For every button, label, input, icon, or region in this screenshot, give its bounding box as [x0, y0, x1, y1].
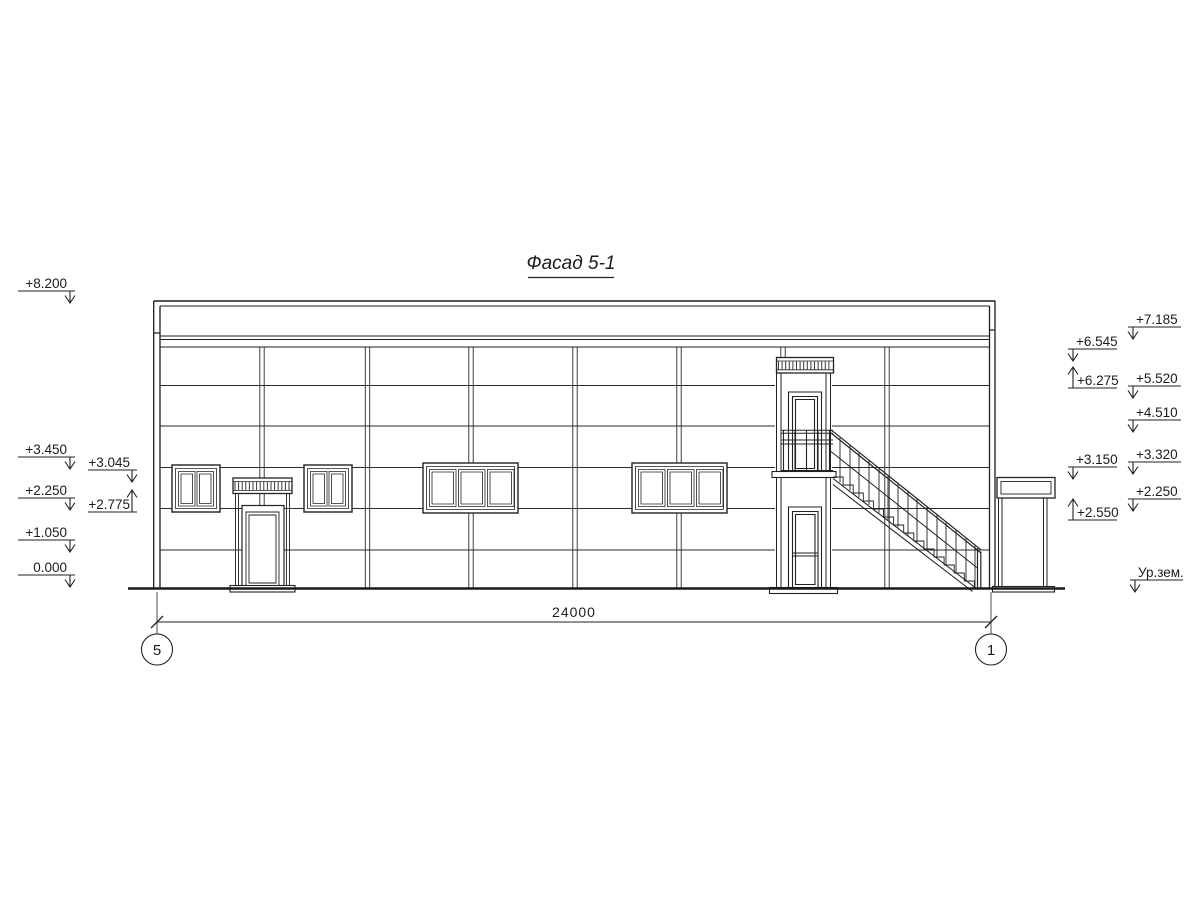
level-value: +2.250: [1136, 484, 1178, 499]
level-value: +6.545: [1076, 334, 1118, 349]
level-mark-symbol: [18, 498, 75, 510]
level-marker: +3.150: [1068, 452, 1118, 479]
level-mark-symbol: [1130, 580, 1183, 592]
level-mark-symbol: [18, 457, 75, 469]
level-mark-symbol: [18, 291, 75, 303]
level-mark-symbol: [1068, 467, 1117, 479]
exterior-stair: [831, 430, 981, 592]
level-value: +2.550: [1077, 505, 1119, 520]
level-value: 0.000: [33, 560, 67, 575]
level-marker: 0.000: [18, 560, 75, 587]
level-value: +8.200: [25, 276, 67, 291]
side-canopy: [993, 478, 1056, 593]
grid-axis-5: 5: [142, 634, 173, 665]
level-marker: +6.545: [1068, 334, 1118, 361]
axis-label-right: 1: [987, 642, 995, 659]
entrance-door-frame: [242, 506, 284, 589]
level-marker: +3.450: [18, 442, 75, 469]
stair-tower: [770, 358, 838, 594]
level-value: +3.045: [88, 455, 130, 470]
level-marker: +3.045: [88, 455, 137, 482]
level-value: +3.150: [1076, 452, 1118, 467]
level-marker: +5.520: [1128, 371, 1181, 398]
level-markers-left-outer: +8.200 +3.450 +2.250 +1.050 0.000: [18, 276, 75, 587]
entrance-left: [230, 478, 295, 592]
stair-end-post: [978, 548, 981, 588]
level-value: +3.320: [1136, 447, 1178, 462]
level-value: +4.510: [1136, 405, 1178, 420]
facade-drawing: Фасад 5-1: [0, 0, 1200, 900]
drawing-title: Фасад 5-1: [527, 253, 616, 278]
building-left-edge: [154, 301, 160, 588]
level-marker: +2.250: [18, 483, 75, 510]
level-value: +1.050: [25, 525, 67, 540]
level-markers-right-inner: +6.545 +6.275 +3.150 +2.550: [1068, 334, 1119, 520]
level-marker: +1.050: [18, 525, 75, 552]
level-mark-symbol: [1068, 349, 1117, 361]
ground-level-label: Ур.зем.: [1138, 565, 1184, 580]
building-right-edge: [990, 301, 996, 588]
side-canopy-posts: [999, 498, 1048, 587]
level-mark-symbol: [18, 540, 75, 552]
level-value: +7.185: [1136, 312, 1178, 327]
balcony-platform: [772, 472, 836, 478]
parapet-bottom-lines: [160, 336, 990, 347]
level-marker: +8.200: [18, 276, 75, 303]
level-marker: +6.275: [1068, 367, 1119, 388]
level-mark-symbol: [1128, 462, 1181, 474]
level-mark-symbol: [1128, 327, 1181, 339]
level-value: +6.275: [1077, 373, 1119, 388]
dimension-group: 24000: [151, 592, 997, 634]
drawing-sheet: Фасад 5-1: [0, 0, 1200, 900]
window-2-frame: [304, 465, 352, 512]
window-1-frame: [172, 465, 220, 512]
side-canopy-board: [997, 478, 1055, 499]
level-value: +3.450: [25, 442, 67, 457]
level-mark-symbol: [1128, 386, 1181, 398]
stair-stringer: [833, 479, 977, 592]
level-markers-right-outer: +7.185 +5.520 +4.510 +3.320 +2.250 Ур.зе…: [1128, 312, 1184, 592]
window-4-frame: [632, 463, 727, 513]
level-marker-ground: Ур.зем.: [1130, 565, 1184, 592]
axis-label-left: 5: [153, 642, 161, 659]
level-mark-symbol: [18, 575, 75, 587]
dimension-value: 24000: [552, 604, 596, 620]
level-marker: +7.185: [1128, 312, 1181, 339]
level-mark-symbol: [1128, 420, 1181, 432]
level-marker: +2.250: [1128, 484, 1181, 511]
grid-axis-1: 1: [976, 634, 1007, 665]
level-value: +2.250: [25, 483, 67, 498]
level-marker: +2.775: [88, 490, 137, 512]
level-marker: +2.550: [1068, 499, 1119, 520]
level-markers-left-inner: +3.045 +2.775: [88, 455, 137, 512]
level-marker: +4.510: [1128, 405, 1181, 432]
page-title: Фасад 5-1: [527, 253, 616, 274]
level-marker: +3.320: [1128, 447, 1181, 474]
level-mark-symbol: [88, 470, 137, 482]
level-value: +2.775: [88, 497, 130, 512]
level-value: +5.520: [1136, 371, 1178, 386]
window-3-frame: [423, 463, 518, 513]
level-mark-symbol: [1128, 499, 1181, 511]
